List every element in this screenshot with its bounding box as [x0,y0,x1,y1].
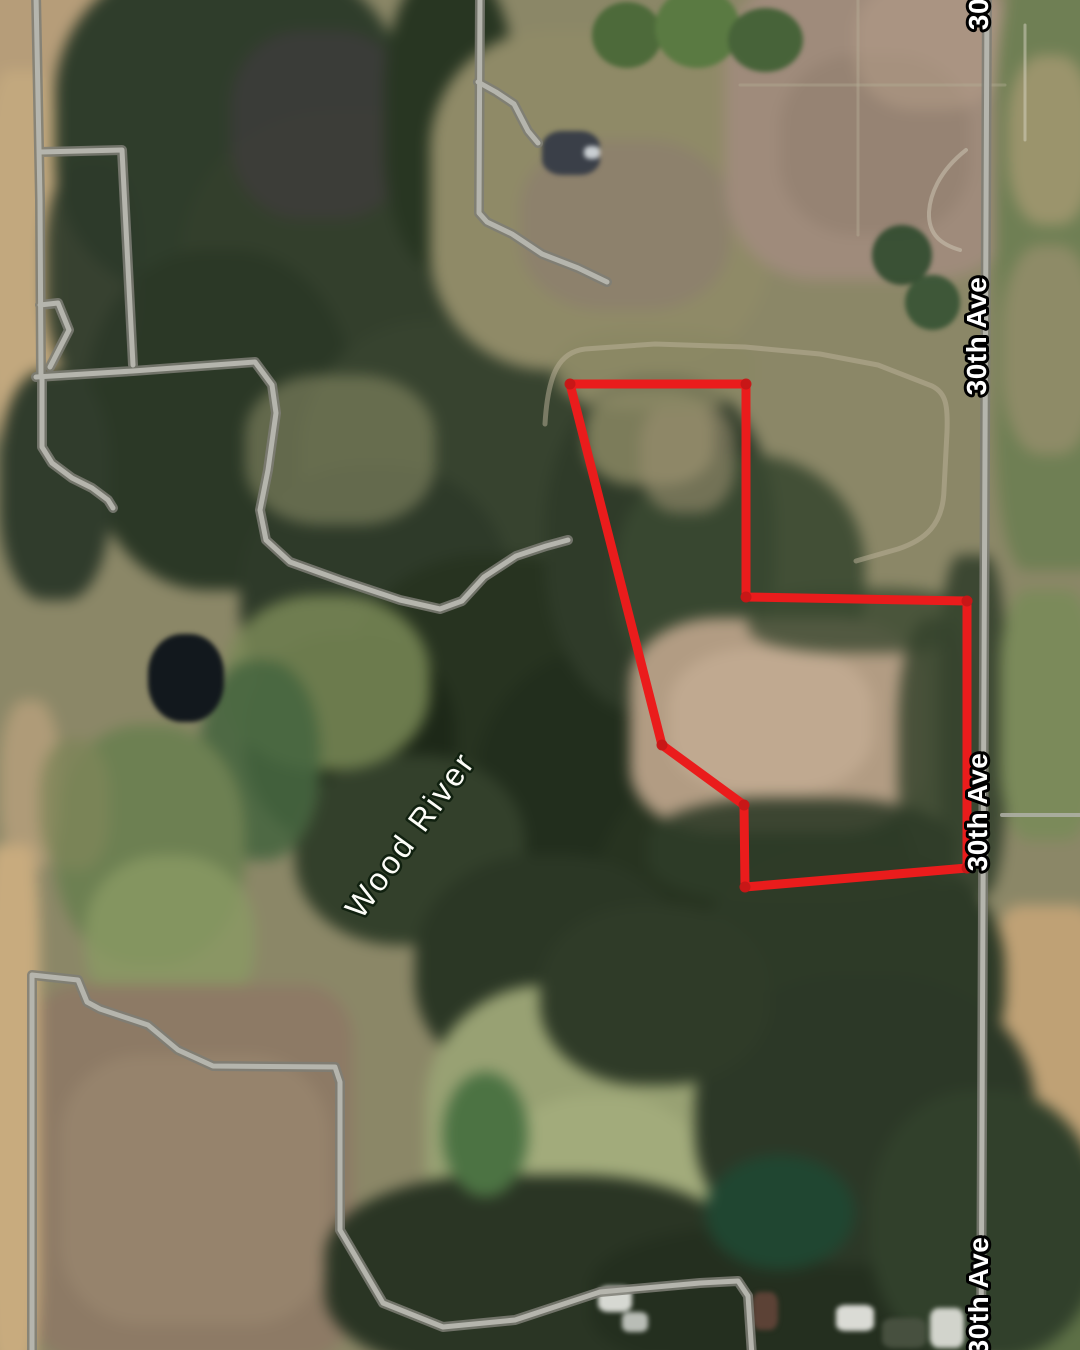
dirt-trails [545,150,966,561]
road-label-top-partial: 30 [963,0,994,30]
satellite-map-canvas[interactable]: 30 30th Ave 30th Ave 30th Ave Wood River [0,0,1080,1350]
road-label-1: 30th Ave [961,277,992,396]
parcel-vertices [565,379,973,893]
roads-fill [32,0,987,1350]
parcel-boundary[interactable] [570,384,967,887]
road-label-3: 30th Ave [963,1237,994,1350]
river-label: Wood River [338,744,483,924]
road-label-2: 30th Ave [962,753,993,872]
map-overlay: 30 30th Ave 30th Ave 30th Ave Wood River [0,0,1080,1350]
roads-edge [32,0,987,1350]
field-boundary-lines [740,0,1080,815]
